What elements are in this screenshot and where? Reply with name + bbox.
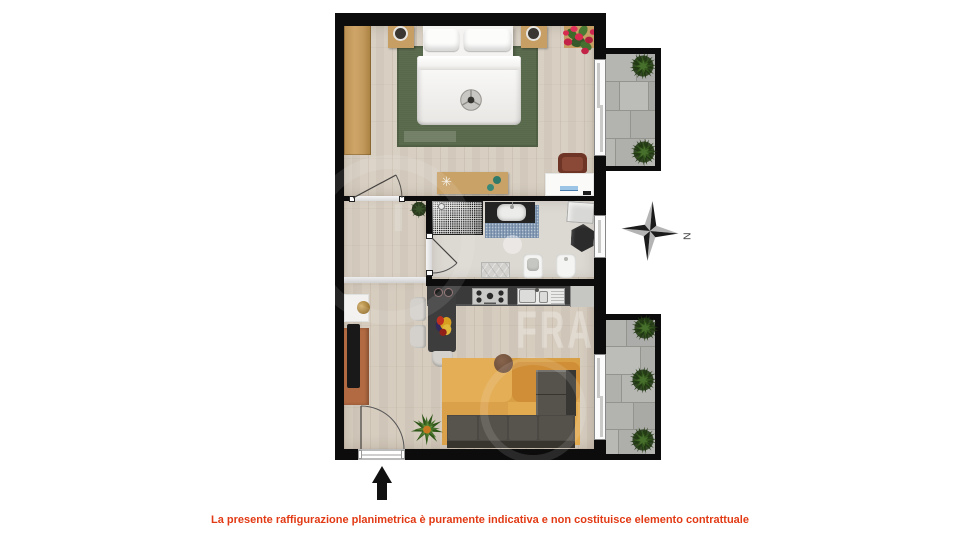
svg-text:N: N <box>681 232 693 240</box>
